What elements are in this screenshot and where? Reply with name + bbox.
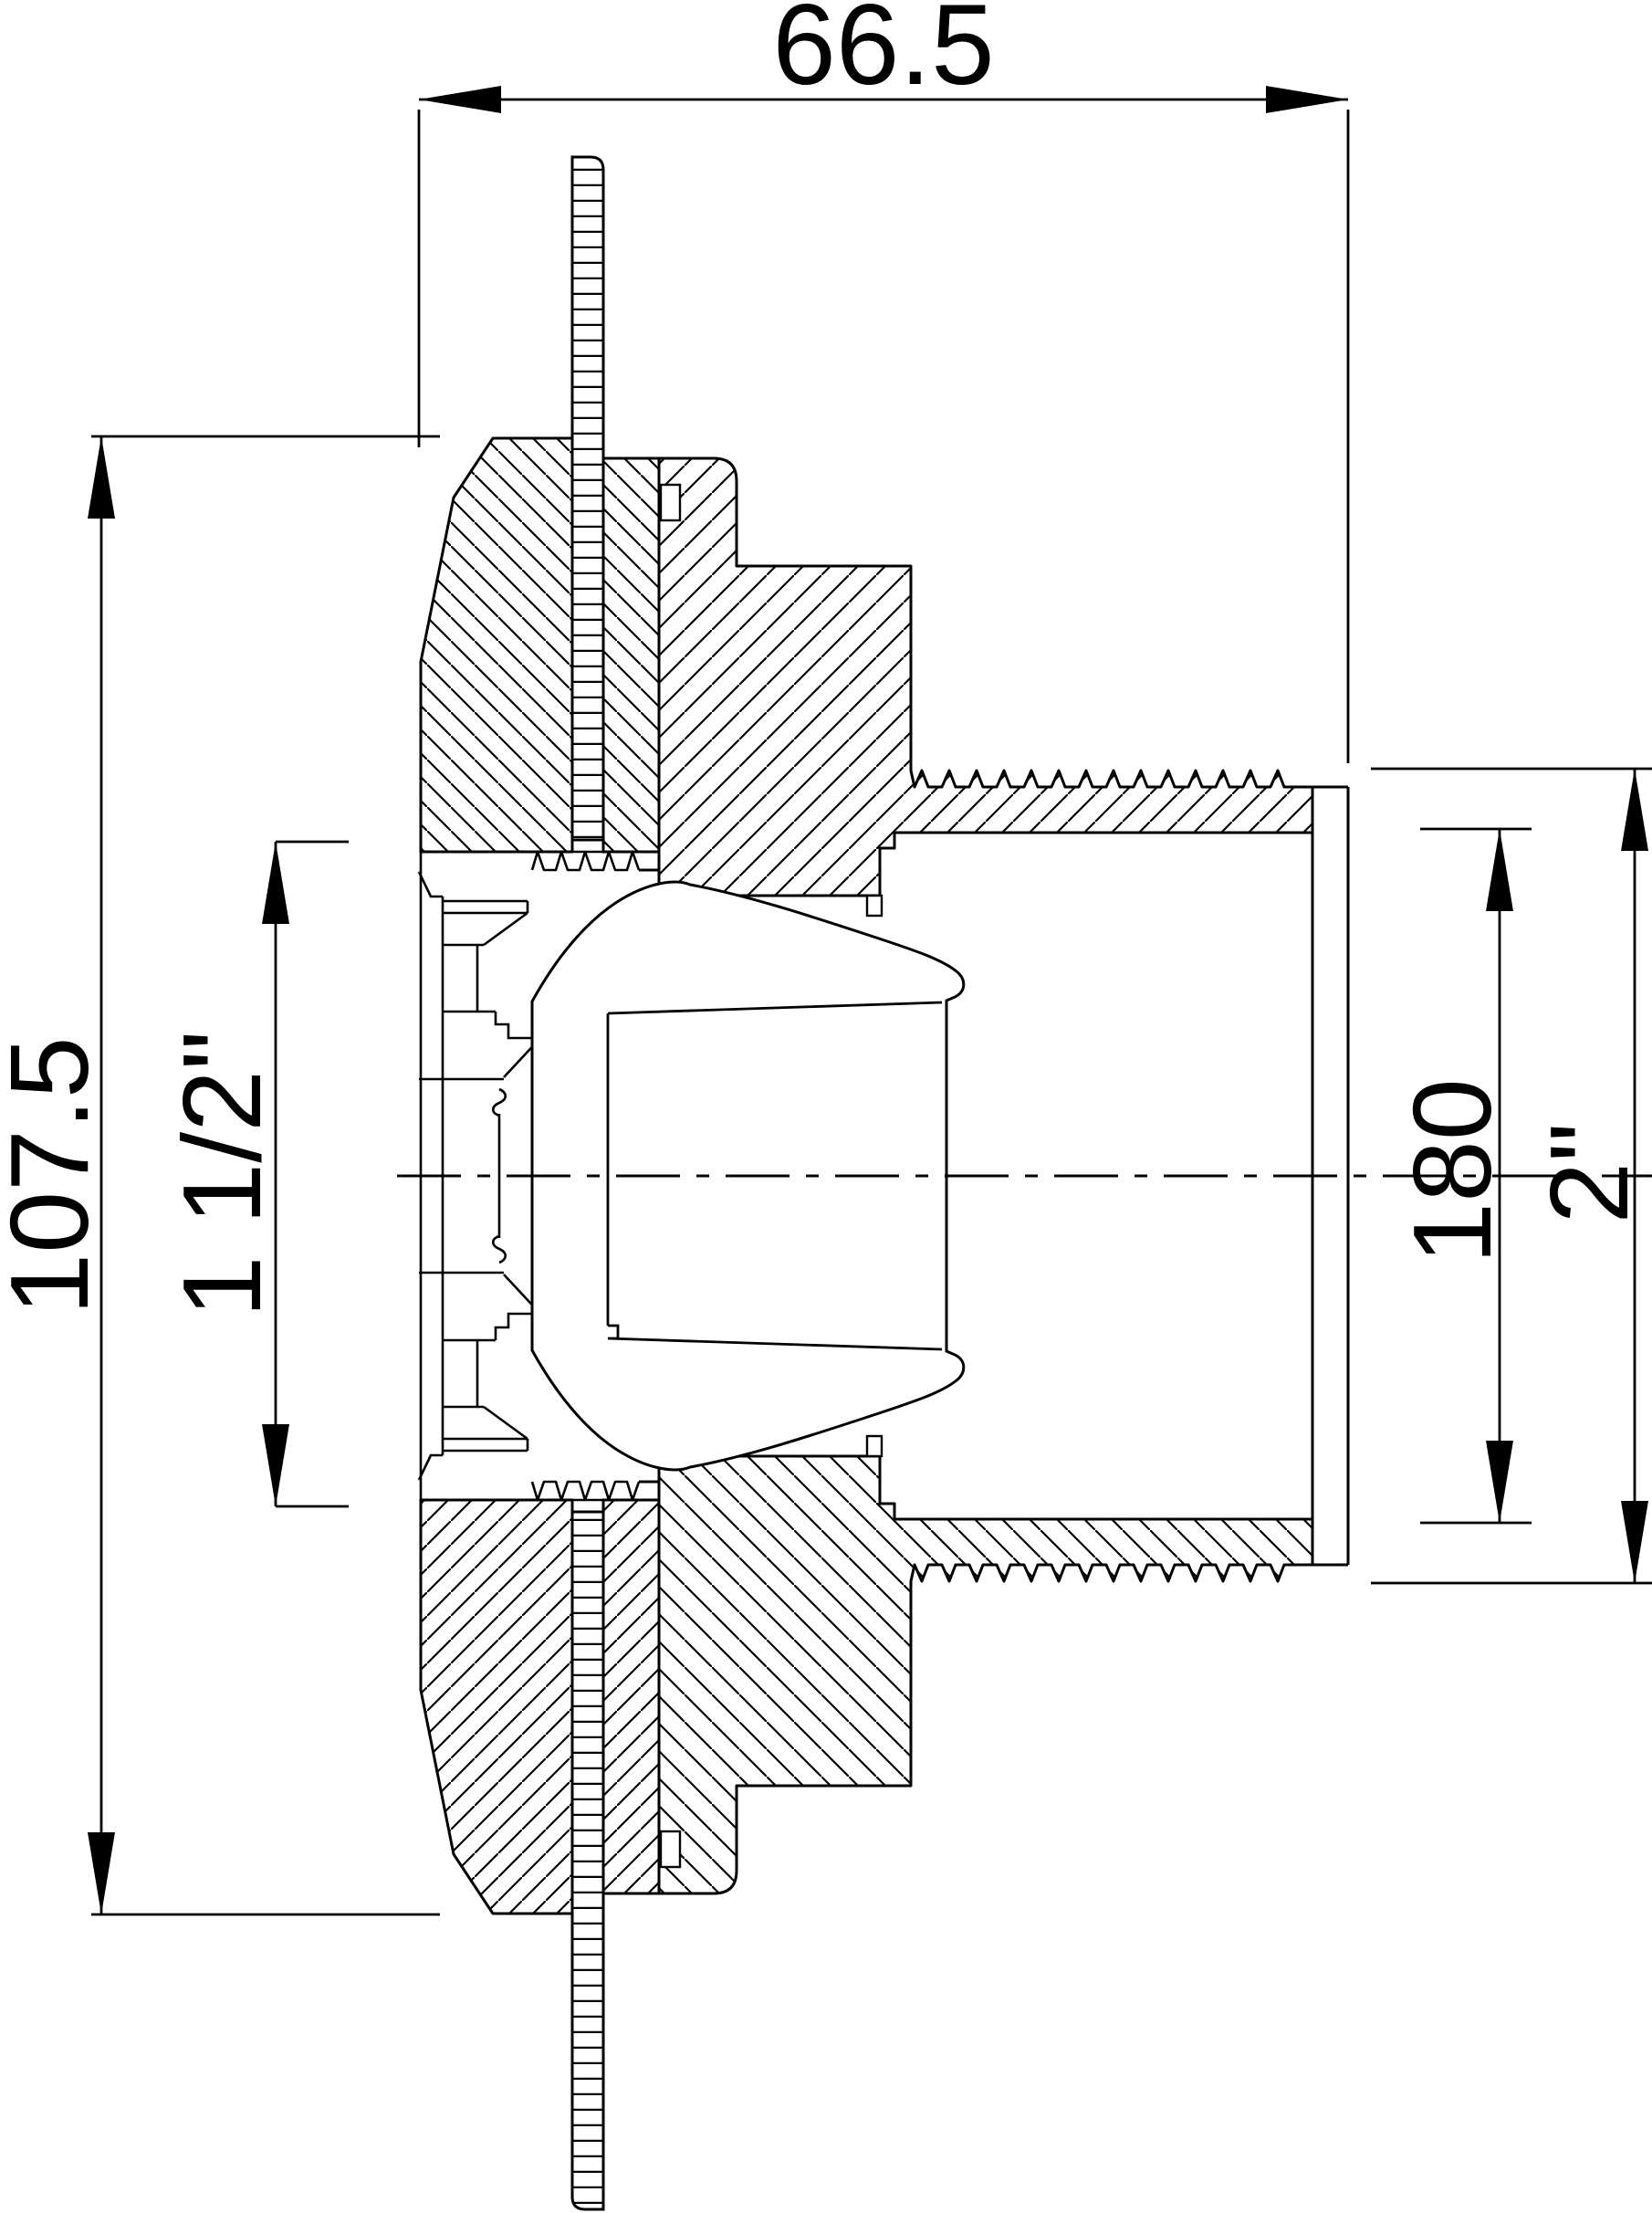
wall-plate-upper: [572, 157, 603, 840]
overall-width-label: 66.5: [772, 0, 994, 109]
flange-diameter-label: 107.5: [0, 1036, 111, 1315]
outer-thread-label: 2": [1527, 1122, 1651, 1223]
wall-plate-lower: [572, 1512, 603, 2209]
dimension-bore: 180: [1390, 829, 1532, 1523]
bore-label: 180: [1390, 1078, 1514, 1264]
dimension-inner-thread: 1 1/2": [160, 842, 349, 1506]
inner-thread-label: 1 1/2": [160, 1031, 284, 1318]
technical-drawing: 66.5 107.5 1 1/2" 180 2": [0, 0, 1652, 2213]
